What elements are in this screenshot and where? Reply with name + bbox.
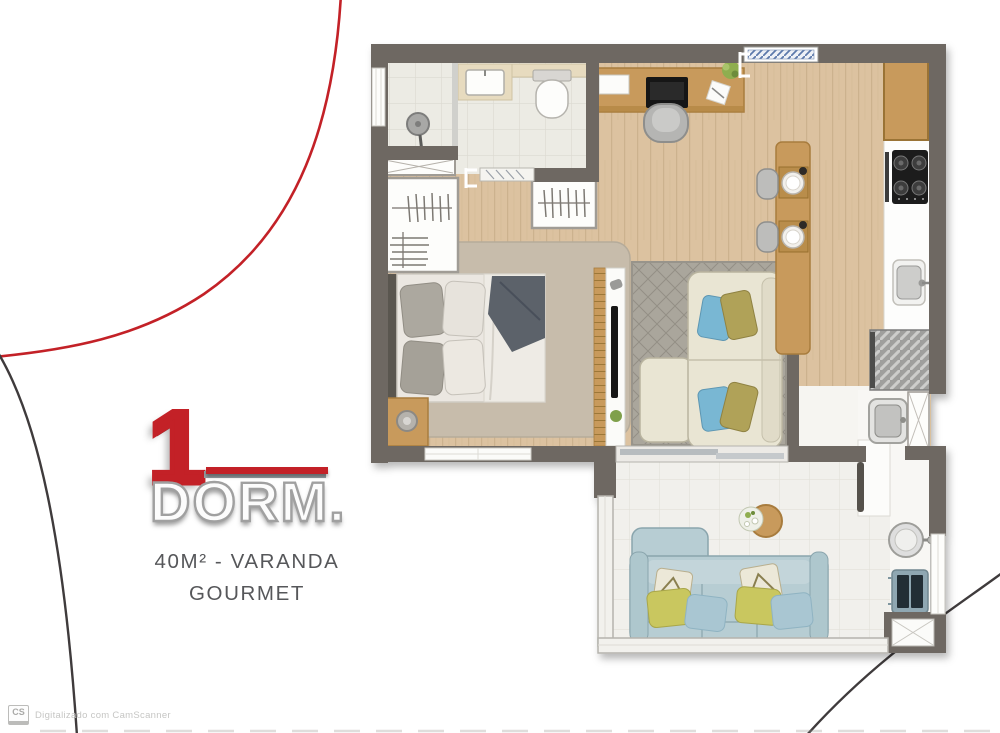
place-setting — [779, 167, 808, 198]
bathroom-door-threshold — [480, 168, 534, 181]
toilet — [533, 70, 571, 118]
window-bedroom — [425, 448, 531, 460]
pillow — [399, 282, 446, 338]
shower-glass-partition — [452, 60, 458, 146]
wall-top — [371, 44, 946, 63]
wall-service-right — [929, 446, 946, 536]
camscanner-badge-icon: CS — [8, 705, 29, 725]
tv-divider — [594, 268, 625, 446]
floor-plan-scene — [0, 0, 1000, 733]
plant-small — [610, 410, 622, 422]
scanned-floor-plan-page: 1 DORM. 40M² - VARANDA GOURMET CS Digita… — [0, 0, 1000, 733]
lightblue-pillow — [684, 594, 728, 633]
balcony-railing-bottom — [598, 638, 888, 653]
sliding-door-living — [616, 446, 788, 462]
camscanner-text: Digitalizado com CamScanner — [35, 710, 171, 721]
open-door-leaf — [857, 462, 864, 512]
wall-shower-bottom — [371, 146, 458, 160]
pillow — [400, 340, 446, 395]
nightstand — [386, 398, 428, 446]
wall-balcony-corner — [594, 446, 616, 498]
office-chair — [644, 104, 688, 142]
wardrobe-hall — [532, 178, 596, 228]
wardrobe-l-shaped — [383, 178, 458, 272]
floor-plan — [371, 44, 946, 653]
service-cabinet-block — [884, 612, 946, 653]
wall-right — [929, 44, 946, 394]
linen-cabinet — [383, 158, 455, 175]
red-circle-arc — [0, 0, 341, 357]
bar-stool — [757, 222, 778, 252]
cooktop-stove — [892, 150, 928, 204]
living-room — [632, 262, 786, 448]
pillow — [442, 281, 486, 338]
laundry-sink — [869, 399, 907, 443]
desk-plant — [722, 61, 740, 79]
flower-arrangement — [739, 507, 763, 531]
place-setting — [779, 221, 808, 252]
window-shower — [372, 68, 385, 126]
lightblue-pillow — [770, 592, 813, 630]
pillow — [442, 339, 486, 396]
tv-screen — [611, 306, 618, 398]
wall-bath-right — [586, 60, 599, 182]
wood-slat-screen — [594, 268, 606, 446]
oven-handle — [885, 152, 889, 202]
washing-machine — [888, 570, 928, 613]
wall-living-bottom — [786, 446, 866, 462]
ac-duct-label — [744, 47, 818, 62]
refrigerator — [870, 330, 930, 390]
window-service — [931, 534, 945, 614]
desk-cabinet — [599, 75, 629, 94]
kitchen-cabinet — [884, 62, 928, 140]
balcony-railing-left — [598, 496, 613, 646]
double-bed — [386, 274, 545, 402]
duct-shaft — [908, 392, 929, 448]
wall-bath-bottom — [533, 168, 599, 182]
dark-arc-left — [0, 351, 77, 733]
camscanner-watermark: CS Digitalizado com CamScanner — [8, 705, 171, 725]
bar-stool — [757, 169, 778, 199]
